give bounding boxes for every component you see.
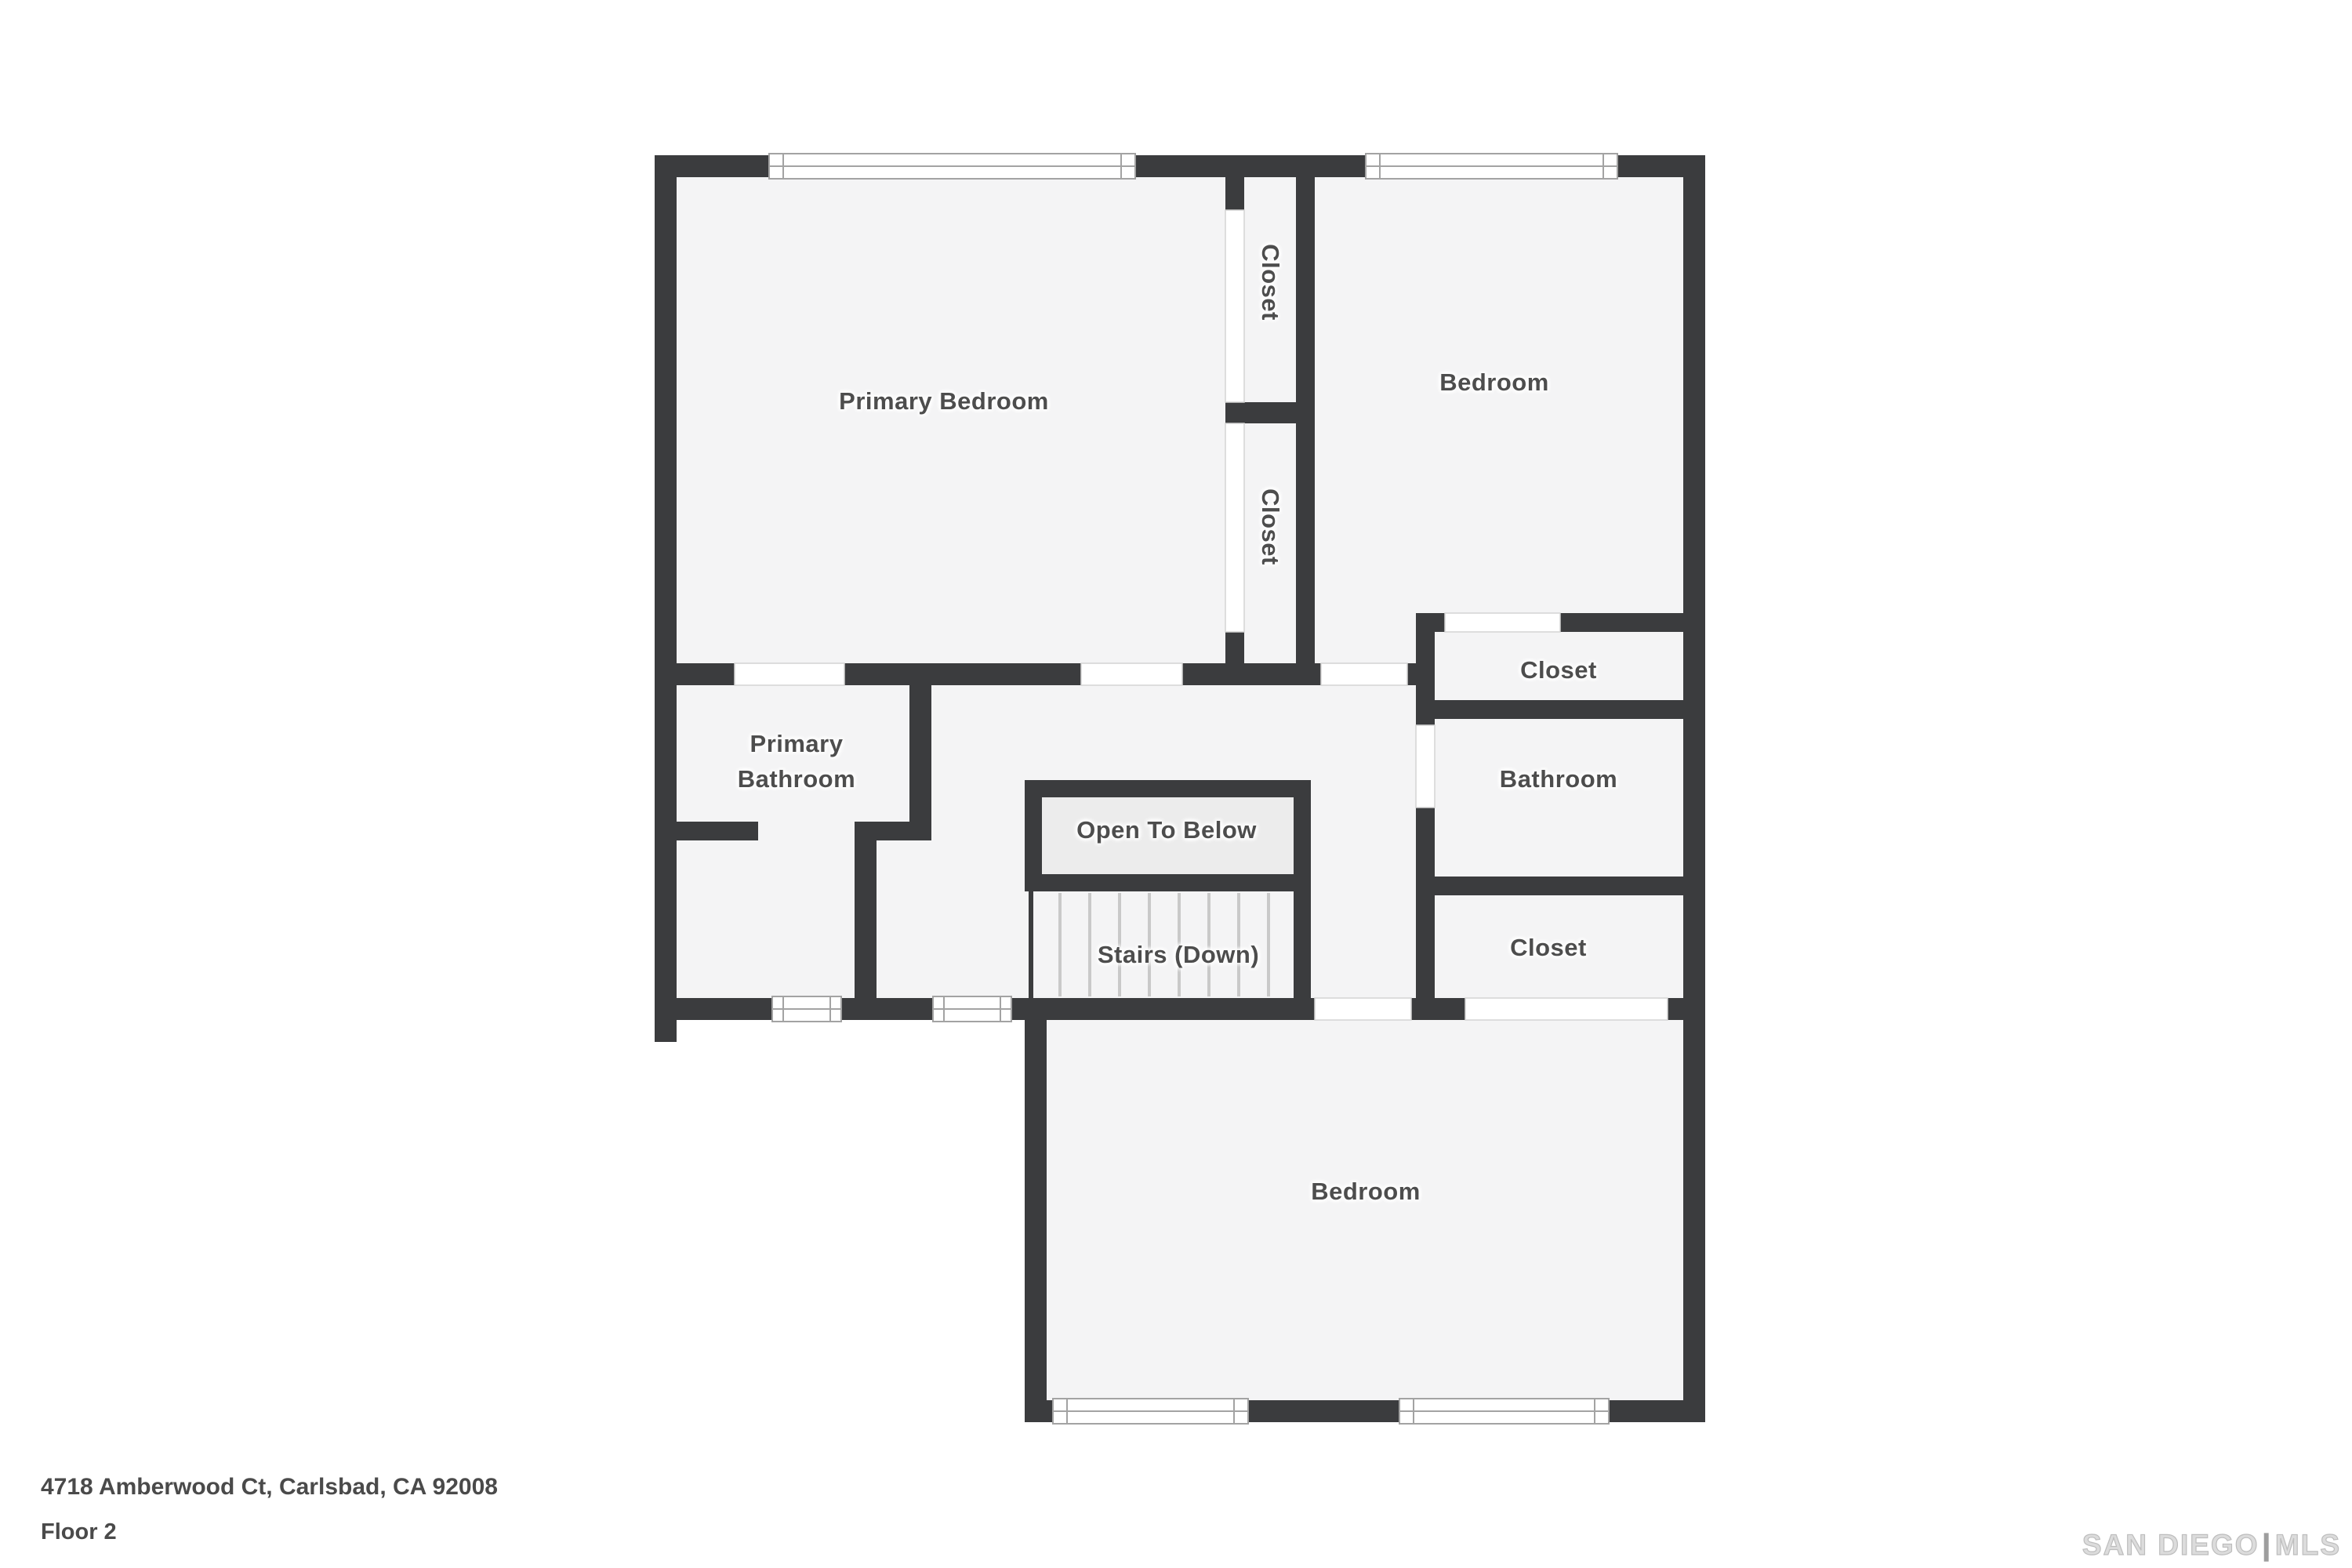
wall-stairs-right	[1294, 891, 1311, 1020]
label-stairs: Stairs (Down)	[1098, 941, 1259, 969]
wall-bottom-middle-3	[1668, 998, 1705, 1020]
label-closet-right-bottom: Closet	[1510, 934, 1587, 962]
door-closet-upper	[1225, 210, 1244, 402]
wall-closet-divider	[1225, 402, 1315, 423]
door-bathroom	[1416, 725, 1435, 808]
floor-text: Floor 2	[41, 1519, 498, 1545]
door-closet-right-bottom	[1465, 998, 1668, 1020]
wall-otb-left	[1025, 780, 1042, 891]
wall-primary-bath-lower	[855, 822, 877, 1020]
watermark-mls: MLS	[2275, 1529, 2341, 1561]
label-open-to-below: Open To Below	[1076, 816, 1257, 844]
window-bedroom2	[1366, 154, 1617, 179]
label-primary-bedroom: Primary Bedroom	[839, 387, 1049, 416]
label-bedroom-bottom: Bedroom	[1311, 1178, 1421, 1206]
wall-otb-right	[1294, 780, 1311, 891]
wall-bedroom-left	[1025, 998, 1047, 1422]
watermark-divider: |	[2263, 1529, 2272, 1561]
wall-hall-top-a	[655, 663, 735, 685]
wall-right-column-left-b	[1416, 808, 1435, 1020]
address-text: 4718 Amberwood Ct, Carlsbad, CA 92008	[41, 1474, 498, 1501]
door-closet-lower	[1225, 423, 1244, 632]
wall-otb-bottom	[1025, 874, 1311, 891]
label-closet-lower: Closet	[1256, 488, 1284, 565]
wall-otb-top	[1025, 780, 1311, 797]
wall-bedroom2-bottom-b	[1560, 613, 1683, 632]
wall-primary-bath-stub	[677, 822, 758, 840]
watermark-brand: SAN DIEGO	[2082, 1529, 2259, 1561]
wall-right-exterior	[1683, 155, 1705, 1422]
wall-primary-bath-right	[909, 685, 931, 822]
wall-hall-top-b	[844, 663, 1081, 685]
label-closet-upper: Closet	[1256, 244, 1284, 321]
wall-closet-strip-right	[1296, 177, 1315, 685]
label-bathroom: Bathroom	[1500, 765, 1617, 793]
window-bedroom-bottom-2	[1399, 1399, 1609, 1424]
window-bath-left	[772, 996, 841, 1022]
floorplan-page: Primary Bedroom Closet Closet Bedroom Cl…	[0, 0, 2352, 1568]
label-bedroom-top-right: Bedroom	[1439, 368, 1549, 397]
wall-right-column-left-a	[1416, 613, 1435, 725]
footer: 4718 Amberwood Ct, Carlsbad, CA 92008 Fl…	[41, 1474, 498, 1545]
wall-hall-top-c	[1182, 663, 1321, 685]
wall-bath-closet-divider	[1435, 877, 1683, 895]
door-bedroom2-closet	[1445, 613, 1560, 632]
stairs-left-edge	[1029, 891, 1033, 998]
label-closet-right-top: Closet	[1520, 656, 1597, 684]
window-bedroom-bottom-1	[1053, 1399, 1248, 1424]
door-primary-bedroom	[1081, 663, 1182, 685]
door-primary-bathroom	[735, 663, 844, 685]
wall-closet-strip-left-a	[1225, 177, 1244, 210]
mls-watermark: SAN DIEGO|MLS	[2082, 1529, 2341, 1562]
label-primary-bathroom: Primary Bathroom	[702, 727, 891, 797]
floorplan-drawing	[0, 0, 2352, 1568]
door-hall-to-bedroom	[1315, 998, 1411, 1020]
window-primary-bedroom	[769, 154, 1135, 179]
window-hall-bottom	[933, 996, 1011, 1022]
door-bedroom2	[1321, 663, 1407, 685]
wall-closet-bath-divider	[1435, 700, 1683, 719]
wall-left-exterior	[655, 155, 677, 1042]
